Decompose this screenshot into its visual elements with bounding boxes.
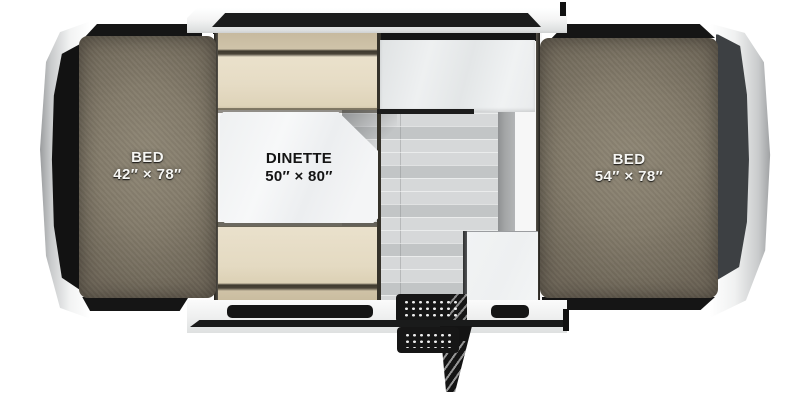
kitchen-counter <box>380 40 535 112</box>
counter-floor-seam <box>377 109 474 114</box>
entry-step-outer <box>397 327 459 353</box>
left-bed-label: BED 42″ × 78″ <box>79 149 216 183</box>
left-bed-bottom-trim <box>80 297 192 311</box>
left-bed-size: 42″ × 78″ <box>79 166 216 183</box>
right-bed-label: BED 54″ × 78″ <box>540 151 718 185</box>
storage-cabinet <box>467 231 538 308</box>
right-bed-top-trim <box>545 24 715 38</box>
bottom-trim-right <box>491 305 529 318</box>
dinette-size: 50″ × 80″ <box>265 168 333 186</box>
dinette-label: DINETTE 50″ × 80″ <box>265 150 333 186</box>
entry-step-inner <box>396 294 467 323</box>
dinette-bench-bottom <box>217 226 377 302</box>
camper-floorplan: DINETTE 50″ × 80″ BED 42″ × 78″ BED 54″ … <box>0 0 800 400</box>
dinette-name: DINETTE <box>265 150 333 168</box>
left-bed: BED 42″ × 78″ <box>79 36 216 298</box>
step-tread-stripes <box>450 294 467 323</box>
right-bed-size: 54″ × 78″ <box>540 168 718 185</box>
roof-rail-top-stripe <box>212 13 541 27</box>
right-bed-name: BED <box>540 151 718 168</box>
bottom-trim-left <box>227 305 373 318</box>
left-bed-name: BED <box>79 149 216 166</box>
dinette-bench-top <box>217 32 377 110</box>
step-tread-dots <box>404 332 451 348</box>
right-bed: BED 54″ × 78″ <box>540 38 718 298</box>
dinette-table: DINETTE 50″ × 80″ <box>220 112 378 223</box>
roof-rail-bottom-stripe <box>190 320 567 327</box>
roof-rail-bottom-tick <box>563 309 569 331</box>
roof-rail-top-tick <box>560 2 566 16</box>
